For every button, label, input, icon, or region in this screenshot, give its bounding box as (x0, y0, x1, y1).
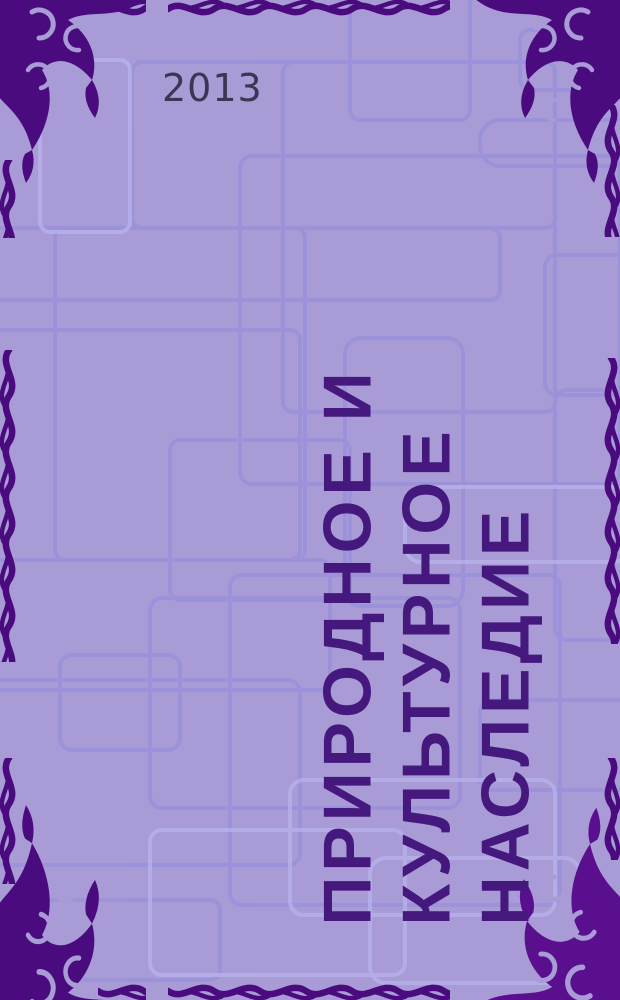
year-label: 2013 (162, 66, 263, 110)
vine-border-left-middle-icon (0, 350, 20, 662)
vine-border-top-icon (168, 0, 450, 18)
corner-ornament-top-left (0, 0, 148, 183)
book-cover: 2013 ПРИРОДНОЕ И КУЛЬТУРНОЕ НАСЛЕДИЕ (0, 0, 620, 1000)
cover-title: ПРИРОДНОЕ И КУЛЬТУРНОЕ НАСЛЕДИЕ (309, 351, 549, 926)
vine-border-left-lower-icon (0, 758, 20, 884)
title-line-3: НАСЛЕДИЕ (467, 351, 546, 926)
corner-ornament-top-right (472, 0, 620, 183)
vine-border-right-lower-icon (600, 758, 620, 860)
title-line-2: КУЛЬТУРНОЕ (388, 351, 467, 926)
title-line-1: ПРИРОДНОЕ И (309, 351, 388, 926)
vine-border-left-upper-icon (0, 160, 20, 238)
vine-border-right-middle-icon (600, 358, 620, 644)
vine-border-top-fragment-icon (98, 0, 146, 18)
vine-border-bottom-fragment-icon (98, 982, 146, 1000)
vine-border-bottom-icon (168, 982, 450, 1000)
vine-border-right-upper-icon (600, 105, 620, 237)
corner-ornament-bottom-left (0, 805, 148, 1000)
